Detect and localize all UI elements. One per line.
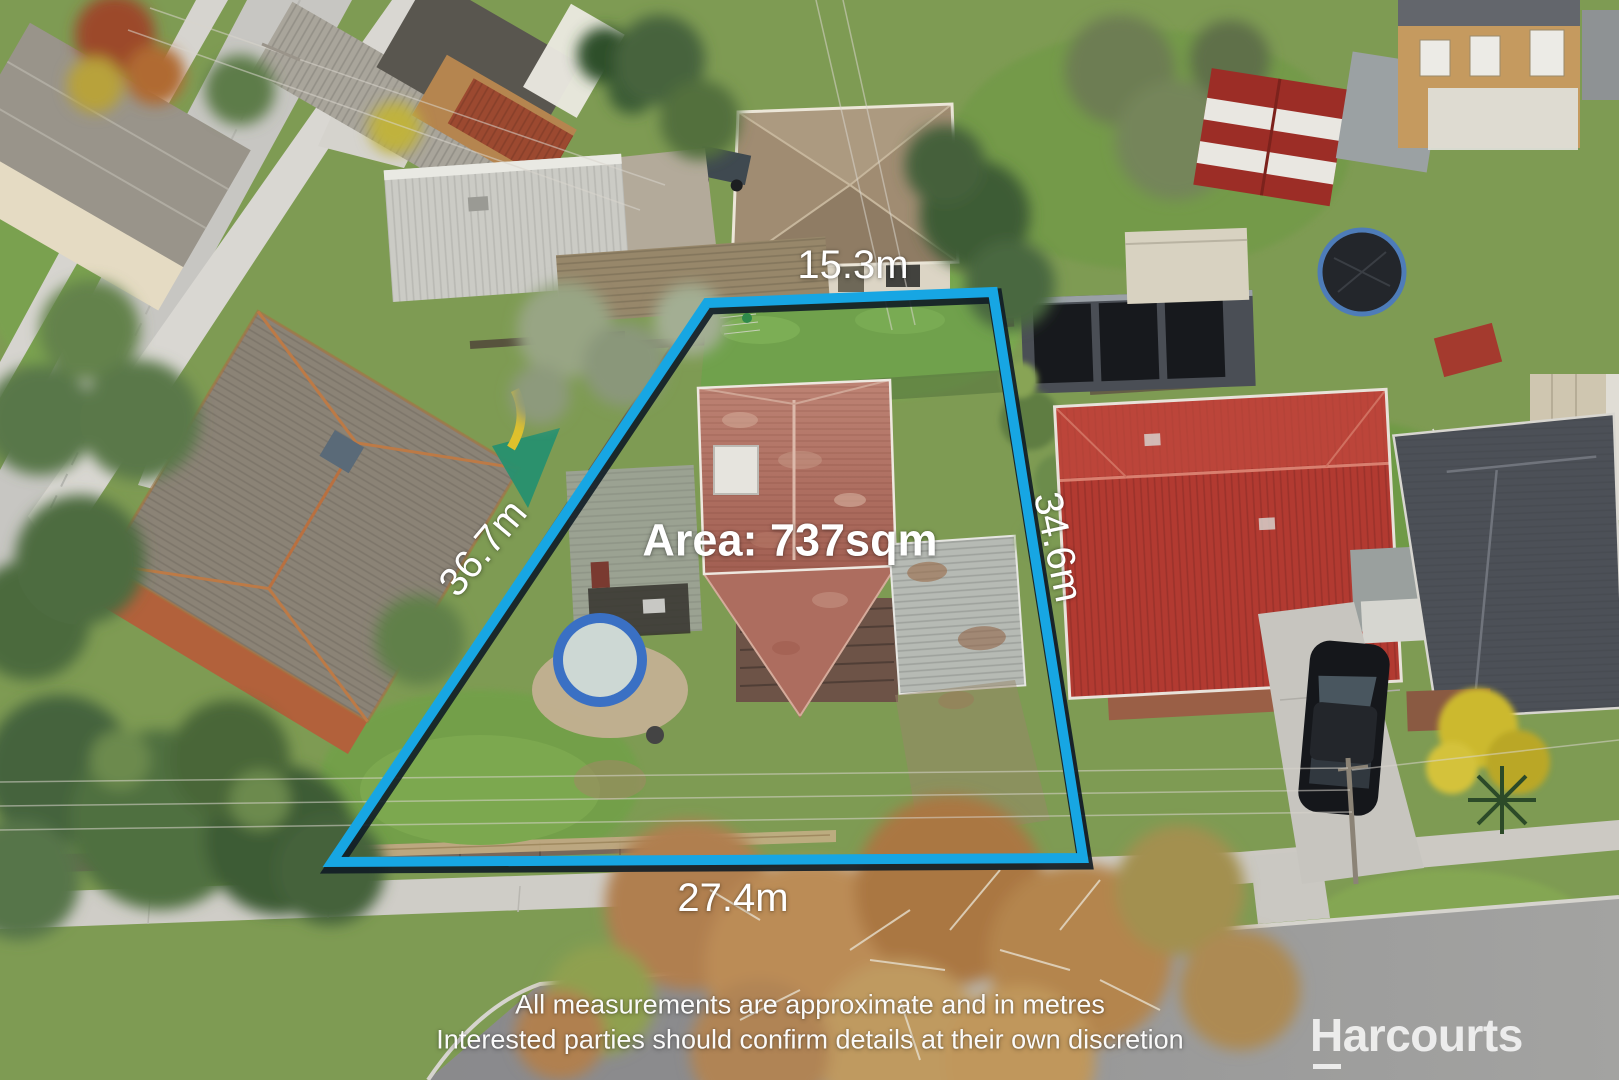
harcourts-logo-underline: [1313, 1064, 1341, 1069]
harcourts-logo-text: Harcourts: [1310, 1009, 1523, 1061]
disclaimer-line-2: Interested parties should confirm detail…: [436, 1027, 1183, 1054]
measurement-bottom-label: 27.4m: [677, 878, 788, 918]
area-label: Area: 737sqm: [642, 518, 937, 563]
aerial-property-photo: 15.3m 36.7m 34.6m 27.4m Area: 737sqm All…: [0, 0, 1619, 1080]
measurement-top-label: 15.3m: [797, 245, 908, 285]
disclaimer-line-1: All measurements are approximate and in …: [515, 992, 1105, 1019]
harcourts-logo: Harcourts: [1310, 1008, 1523, 1062]
